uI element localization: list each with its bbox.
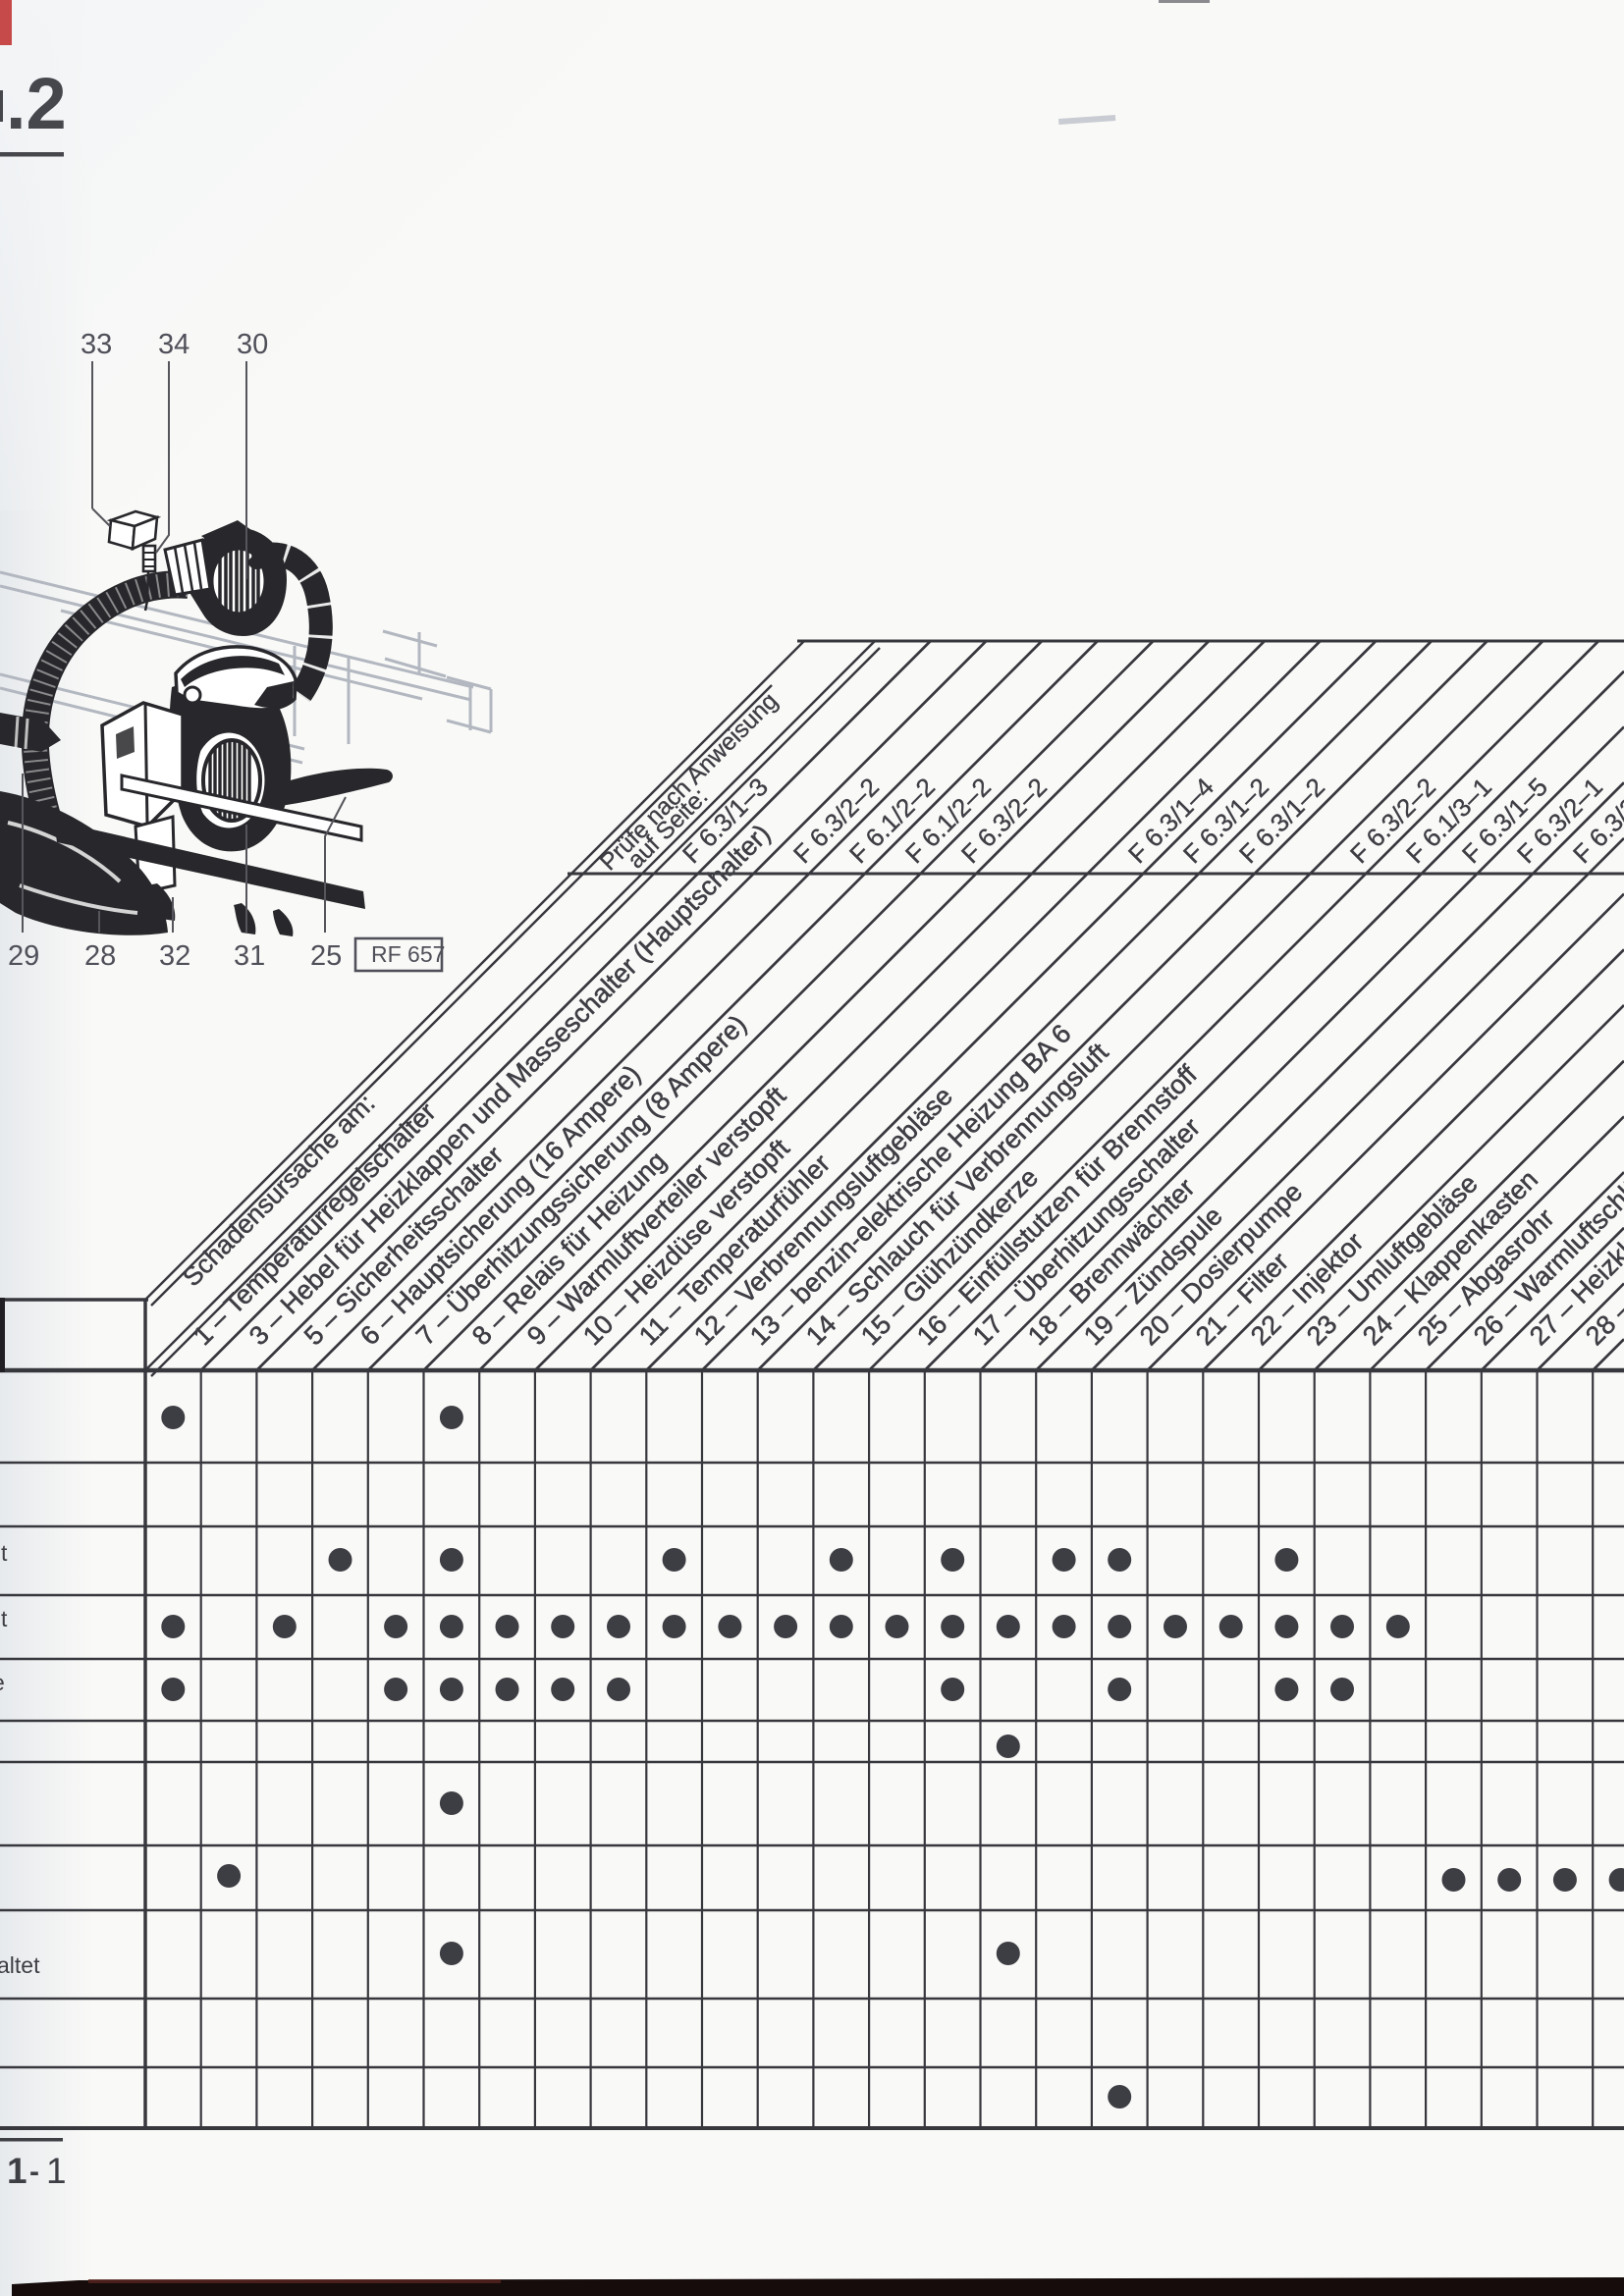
svg-text:1: 1 xyxy=(7,2151,27,2191)
svg-text:-: - xyxy=(29,2156,39,2188)
svg-text:30: 30 xyxy=(237,329,268,360)
svg-text:e: e xyxy=(0,1670,5,1695)
svg-text:29: 29 xyxy=(8,940,39,972)
svg-text:1: 1 xyxy=(46,2151,67,2191)
svg-text:33: 33 xyxy=(81,329,112,360)
svg-text:34: 34 xyxy=(158,329,189,360)
svg-text:t: t xyxy=(1,1540,8,1566)
svg-text:RF 657: RF 657 xyxy=(371,941,445,967)
svg-text:25: 25 xyxy=(310,940,342,972)
svg-text:t: t xyxy=(1,1606,8,1631)
svg-text:32: 32 xyxy=(159,940,190,972)
svg-text:altet: altet xyxy=(0,1952,40,1978)
svg-text:31: 31 xyxy=(234,940,265,972)
svg-text:28: 28 xyxy=(84,940,116,972)
svg-text:.2: .2 xyxy=(6,63,67,144)
